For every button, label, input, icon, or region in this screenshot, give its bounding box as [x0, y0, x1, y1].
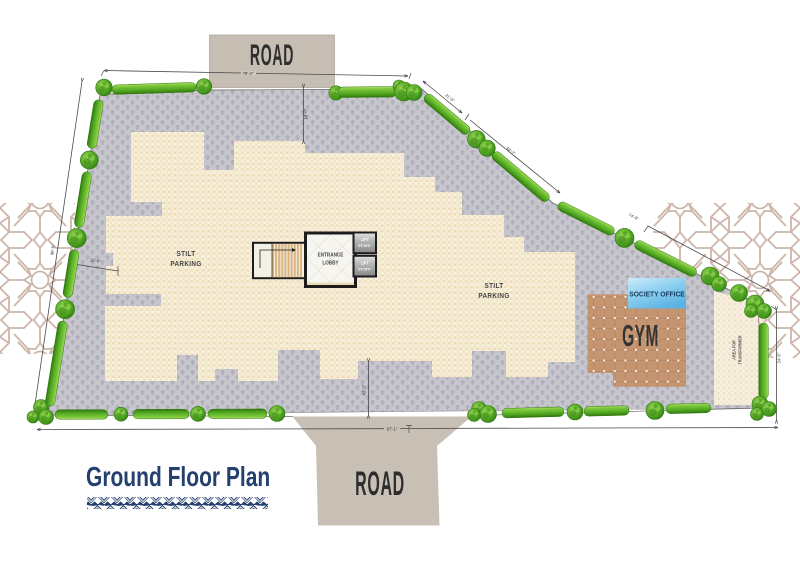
svg-text:Ground Floor Plan: Ground Floor Plan: [86, 462, 270, 493]
svg-text:STILT: STILT: [485, 283, 504, 291]
svg-text:AREA FOR: AREA FOR: [731, 340, 736, 359]
svg-text:24'-5": 24'-5": [777, 352, 782, 363]
svg-text:STILT: STILT: [177, 251, 196, 259]
svg-text:78'-4": 78'-4": [243, 71, 254, 76]
svg-text:LIFT: LIFT: [361, 237, 369, 243]
svg-text:ROAD: ROAD: [355, 464, 405, 502]
svg-text:LOBBY: LOBBY: [322, 260, 339, 267]
svg-text:SOCIETY OFFICE: SOCIETY OFFICE: [629, 290, 685, 298]
svg-text:42'-0": 42'-0": [362, 384, 367, 395]
svg-text:PARKING: PARKING: [170, 261, 201, 269]
svg-text:ENTRANCE: ENTRANCE: [318, 252, 344, 259]
svg-text:PARKING: PARKING: [478, 293, 509, 301]
svg-text:10'-0": 10'-0": [303, 108, 308, 119]
svg-text:LIFT: LIFT: [361, 260, 369, 266]
svg-text:TRANSFORMER: TRANSFORMER: [737, 335, 742, 364]
svg-text:ROAD: ROAD: [250, 38, 294, 71]
svg-text:5'0"x5'0": 5'0"x5'0": [358, 244, 371, 248]
svg-text:97'-1": 97'-1": [387, 426, 398, 431]
svg-text:5'0"x5'0": 5'0"x5'0": [358, 267, 371, 271]
svg-text:GYM: GYM: [622, 319, 659, 353]
